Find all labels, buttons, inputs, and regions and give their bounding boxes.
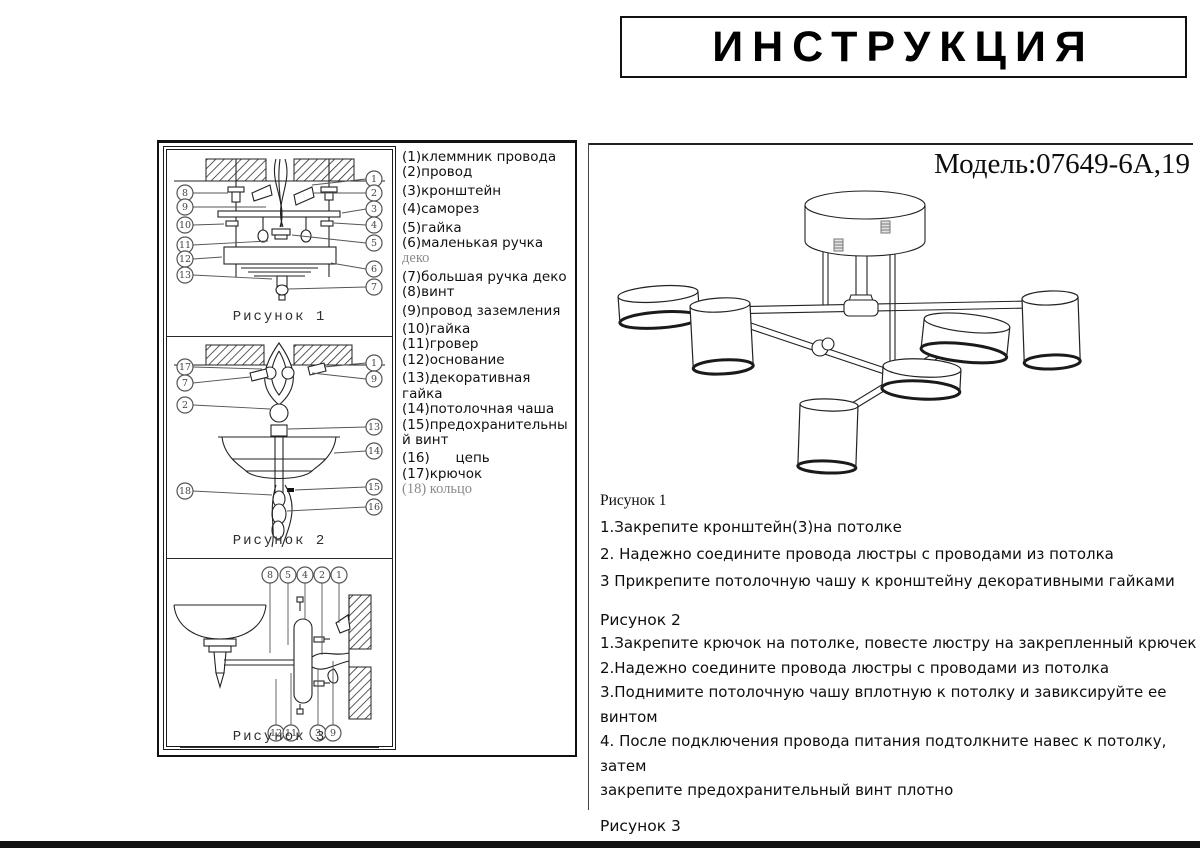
parts-list-line: (6)маленькая ручка (402, 236, 572, 251)
figure-3: 8 5 4 2 1 12 11 3 9 Рисунок 3 (166, 561, 393, 752)
parts-list-line: (18) кольцо (402, 482, 572, 497)
figure-1: 8 9 10 11 12 13 1 2 3 4 5 6 7 Рисунок 1 (166, 149, 393, 337)
parts-list-line: (16) цепь (402, 451, 572, 466)
figure-1-steps: 1.Закрепите кронштейн(3)на потолке2. Над… (600, 514, 1200, 595)
instruction-line: 4. После подключения провода питания под… (600, 729, 1200, 778)
callout-number: 13 (368, 422, 380, 433)
instruction-line: 2.Надежно соедините провода люстры с про… (600, 656, 1200, 681)
parts-list-line: (10)гайка (402, 322, 572, 337)
figure-3-heading: Рисунок 3 (600, 817, 1200, 835)
figures-panel: 8 9 10 11 12 13 1 2 3 4 5 6 7 Рисунок 1 (163, 146, 396, 750)
page-bottom-rule (0, 841, 1200, 848)
callout-number: 1 (371, 174, 377, 185)
canopy-screw (881, 221, 890, 233)
lamp-shade (618, 283, 701, 330)
figure-3-caption: Рисунок 3 (166, 729, 393, 745)
canopy-screw (834, 239, 843, 251)
rod-and-cup (218, 404, 340, 497)
callout-number: 18 (179, 486, 191, 497)
parts-list-line: й винт (402, 433, 572, 448)
instruction-line: 3 Прикрепите потолочную чашу к кронштейн… (600, 568, 1200, 595)
instruction-sheet: ИНСТРУКЦИЯ Модель:07649-6А,19 (0, 0, 1200, 848)
sconce-shade (174, 605, 266, 687)
page-title: ИНСТРУКЦИЯ (712, 23, 1095, 72)
callout-number: 1 (336, 570, 342, 581)
parts-list-line: (11)гровер (402, 337, 572, 352)
parts-list-line: (14)потолочная чаша (402, 402, 572, 417)
callout-number: 7 (182, 378, 188, 389)
instruction-line: закрепите предохранительный винт плотно (600, 778, 1200, 803)
instruction-line: 1.Закрепите крючок на потолке, повесте л… (600, 631, 1200, 656)
figure-2-steps: 1.Закрепите крючок на потолке, повесте л… (600, 631, 1200, 803)
lamp-shade (690, 296, 754, 375)
title-box: ИНСТРУКЦИЯ (620, 16, 1187, 78)
parts-list-line: (15)предохранительны (402, 418, 572, 433)
instruction-line: 2. Надежно соедините провода люстры с пр… (600, 541, 1200, 568)
figure-2-heading: Рисунок 2 (600, 611, 1200, 629)
parts-list-line: (12)основание (402, 353, 572, 368)
callout-number: 13 (179, 270, 191, 281)
callout-number: 9 (182, 202, 188, 213)
callout-number: 12 (179, 254, 191, 265)
callout-number: 4 (302, 570, 308, 581)
lamp-shade (798, 398, 859, 474)
callout-number: 2 (371, 188, 377, 199)
callout-number: 15 (368, 482, 380, 493)
callout-number: 4 (371, 220, 377, 231)
callout-number: 3 (371, 204, 377, 215)
parts-list-line: (9)провод заземления (402, 304, 572, 319)
figure-1-drawing: 8 9 10 11 12 13 1 2 3 4 5 6 7 (166, 149, 393, 335)
callout-number: 9 (371, 374, 377, 385)
column-divider (588, 143, 589, 810)
parts-list-line: (17)крючок (402, 467, 572, 482)
parts-list-line: деко (402, 251, 572, 266)
parts-list-line: (8)винт (402, 285, 572, 300)
instruction-line: 1.Закрепите кронштейн(3)на потолке (600, 514, 1200, 541)
callout-number: 11 (179, 240, 191, 251)
lamp-shade (1022, 290, 1081, 370)
callout-number: 14 (368, 446, 380, 457)
parts-list-line: гайка (402, 387, 572, 402)
callout-number: 6 (371, 264, 377, 275)
callout-number: 16 (368, 502, 380, 513)
wall-hatch (349, 595, 371, 719)
caption-underline (180, 747, 379, 748)
lamp-shade (920, 310, 1011, 367)
callout-number: 5 (285, 570, 291, 581)
parts-list-line: (2)провод (402, 165, 572, 180)
callout-number: 8 (267, 570, 273, 581)
instructions-column: Рисунок 1 1.Закрепите кронштейн(3)на пот… (600, 492, 1200, 848)
figure-3-drawing: 8 5 4 2 1 12 11 3 9 (166, 561, 393, 751)
parts-list-line: (1)клеммник провода (402, 150, 572, 165)
chandelier-drawing (598, 183, 1110, 488)
lamp-base (224, 229, 336, 300)
figure-2-drawing: 17 7 2 18 1 9 13 14 15 16 (166, 339, 393, 557)
callout-number: 2 (182, 400, 188, 411)
callout-number: 10 (179, 220, 191, 231)
ceiling-canopy (805, 191, 925, 256)
instruction-line: 3.Поднимите потолочную чашу вплотную к п… (600, 680, 1200, 705)
callout-number: 8 (182, 188, 188, 199)
figure-1-caption: Рисунок 1 (166, 309, 393, 325)
parts-list-line: (5)гайка (402, 221, 572, 236)
parts-list: (1)клеммник провода(2)провод(3)кронштейн… (402, 150, 572, 498)
lamp-shade (881, 357, 961, 401)
model-label: Модель:07649-6А,19 (588, 148, 1190, 181)
callout-number: 17 (179, 362, 191, 373)
model-rule (588, 143, 1193, 145)
figure-1-heading: Рисунок 1 (600, 492, 1200, 510)
figure-2-caption: Рисунок 2 (166, 533, 393, 549)
sconce-bracket (224, 597, 350, 714)
parts-list-line: (4)саморез (402, 202, 572, 217)
callout-number: 2 (319, 570, 325, 581)
parts-list-line: (7)большая ручка деко (402, 270, 572, 285)
callout-number: 1 (371, 358, 377, 369)
parts-list-line: (3)кронштейн (402, 184, 572, 199)
callout-number: 5 (371, 238, 377, 249)
figure-2: 17 7 2 18 1 9 13 14 15 16 Рисунок 2 (166, 339, 393, 559)
callout-number: 7 (371, 282, 377, 293)
instruction-line: винтом (600, 705, 1200, 730)
parts-list-line: (13)декоративная (402, 371, 572, 386)
